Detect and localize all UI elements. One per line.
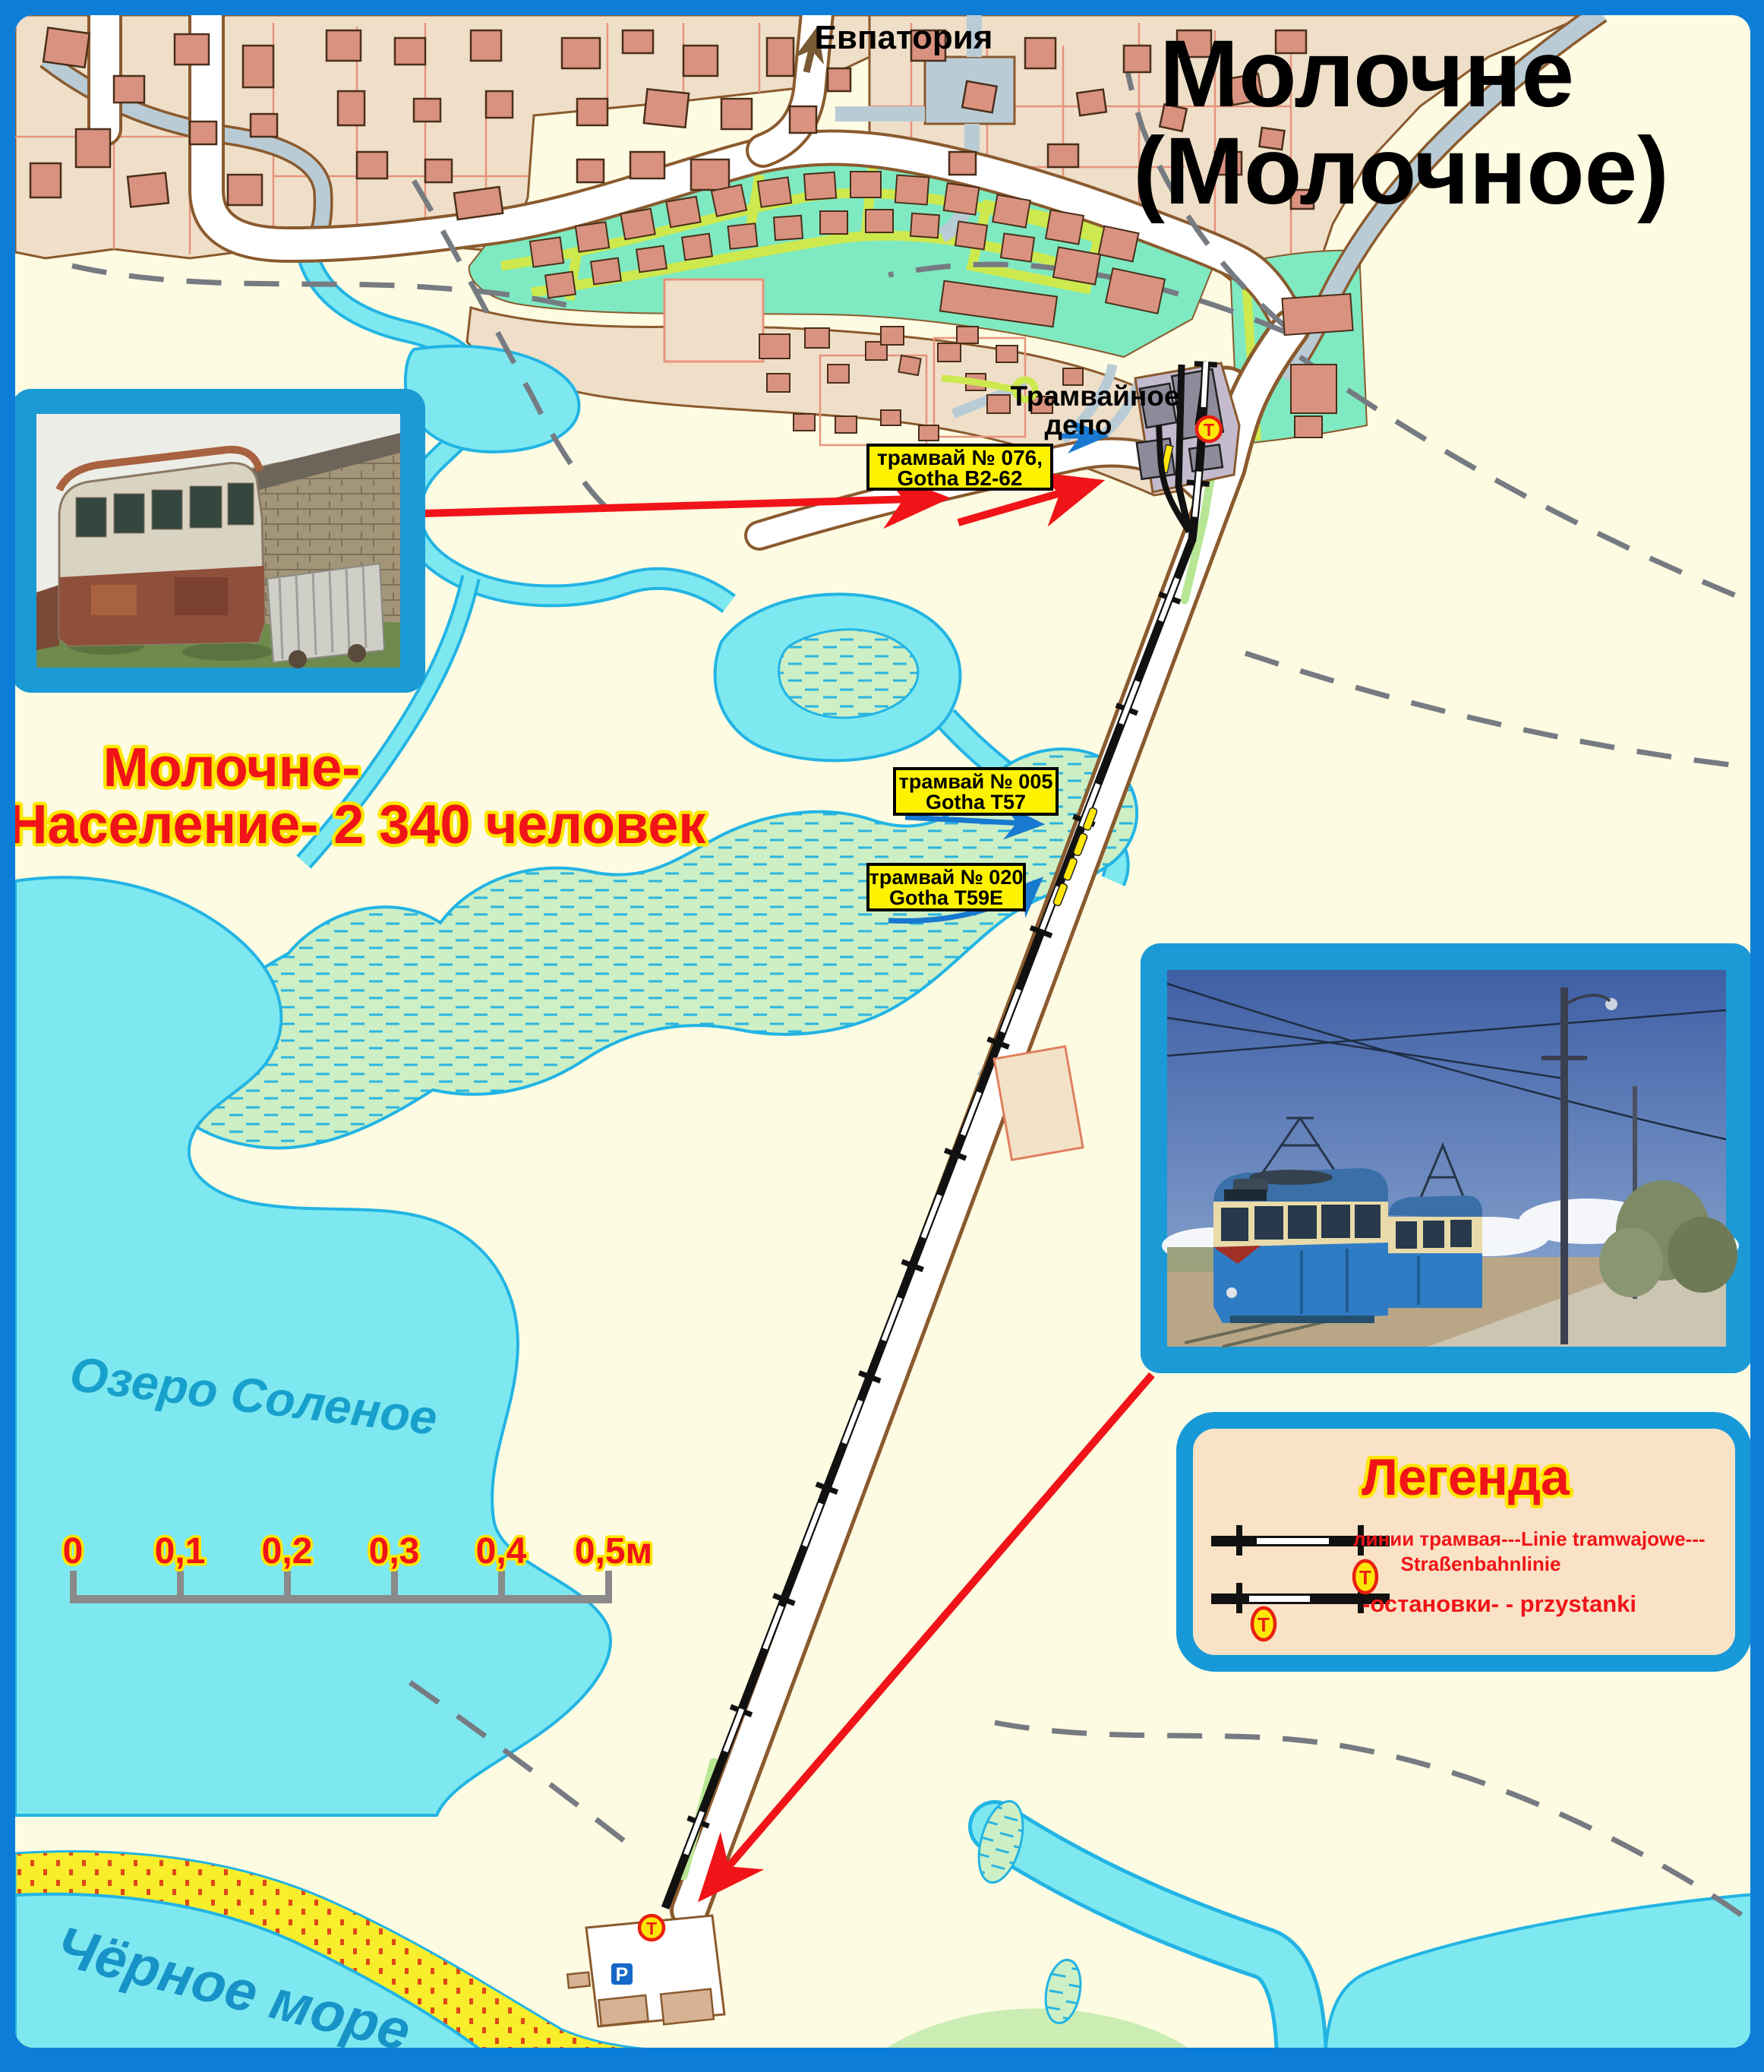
depot-label-line2: депо bbox=[1044, 409, 1112, 441]
tram-stop-letter: T bbox=[646, 1919, 657, 1938]
tram005-label-line2: Gotha T57 bbox=[926, 791, 1026, 813]
marsh-island bbox=[779, 630, 918, 718]
tram020-label-line1: трамвай № 020 bbox=[869, 866, 1024, 889]
tram020-label: трамвай № 020 Gotha T59E bbox=[868, 864, 1024, 910]
legend-line-label-line1: линии трамвая---Linie tramwajowe--- bbox=[1353, 1527, 1706, 1550]
legend-stop-letter: T bbox=[1258, 1613, 1270, 1636]
parking-letter: P bbox=[616, 1964, 629, 1985]
tram020-label-line2: Gotha T59E bbox=[889, 886, 1003, 909]
scale-tick-0: 0 bbox=[63, 1531, 84, 1571]
map-title-line1: Молочне bbox=[1160, 21, 1574, 127]
legend-line-label-line2: Straßenbahnlinie bbox=[1401, 1552, 1561, 1575]
map-title-line2: (Молочное) bbox=[1133, 118, 1669, 224]
scale-tick-3: 0,3 bbox=[369, 1531, 420, 1571]
legend-stops-label: -остановки- - przystanki bbox=[1362, 1590, 1636, 1617]
parking-marker: P bbox=[611, 1963, 633, 1985]
scale-tick-5: 0,5м bbox=[575, 1531, 652, 1571]
depot-label-line1: Трамвайное bbox=[1011, 381, 1180, 412]
scale-tick-4: 0,4 bbox=[476, 1531, 527, 1571]
tram-stop-letter: T bbox=[1204, 420, 1214, 440]
tram076-label: трамвай № 076, Gotha B2-62 bbox=[868, 445, 1052, 490]
tram-vehicle-2 bbox=[1388, 1196, 1482, 1308]
population-label-line1: Молочне- bbox=[103, 738, 360, 798]
tram-vehicle-1 bbox=[1213, 1168, 1388, 1323]
tram-stop-marker-depot: T bbox=[1197, 417, 1221, 441]
legend-box: Легенда линии трамвая---Linie tramwajowe… bbox=[1185, 1420, 1743, 1663]
photo-abandoned-tram bbox=[11, 389, 425, 693]
scale-tick-1: 0,1 bbox=[155, 1531, 206, 1571]
legend-stop-letter: T bbox=[1359, 1566, 1371, 1589]
tram-stop-marker-terminal: T bbox=[639, 1916, 664, 1940]
legend-title: Легенда bbox=[1362, 1448, 1570, 1506]
tram076-label-line2: Gotha B2-62 bbox=[898, 466, 1023, 490]
map-canvas: T T P Молочне (Молочное) Евпатория Трамв… bbox=[0, 0, 1764, 2072]
map-poster: T T P Молочне (Молочное) Евпатория Трамв… bbox=[0, 0, 1764, 2072]
tram005-label: трамвай № 005 Gotha T57 bbox=[895, 769, 1057, 814]
tram005-label-line1: трамвай № 005 bbox=[899, 770, 1053, 793]
population-label-line2: Население- 2 340 человек bbox=[8, 794, 707, 855]
direction-label: Евпатория bbox=[815, 19, 993, 56]
photo-blue-trams bbox=[1141, 943, 1753, 1373]
scale-tick-2: 0,2 bbox=[262, 1531, 313, 1571]
